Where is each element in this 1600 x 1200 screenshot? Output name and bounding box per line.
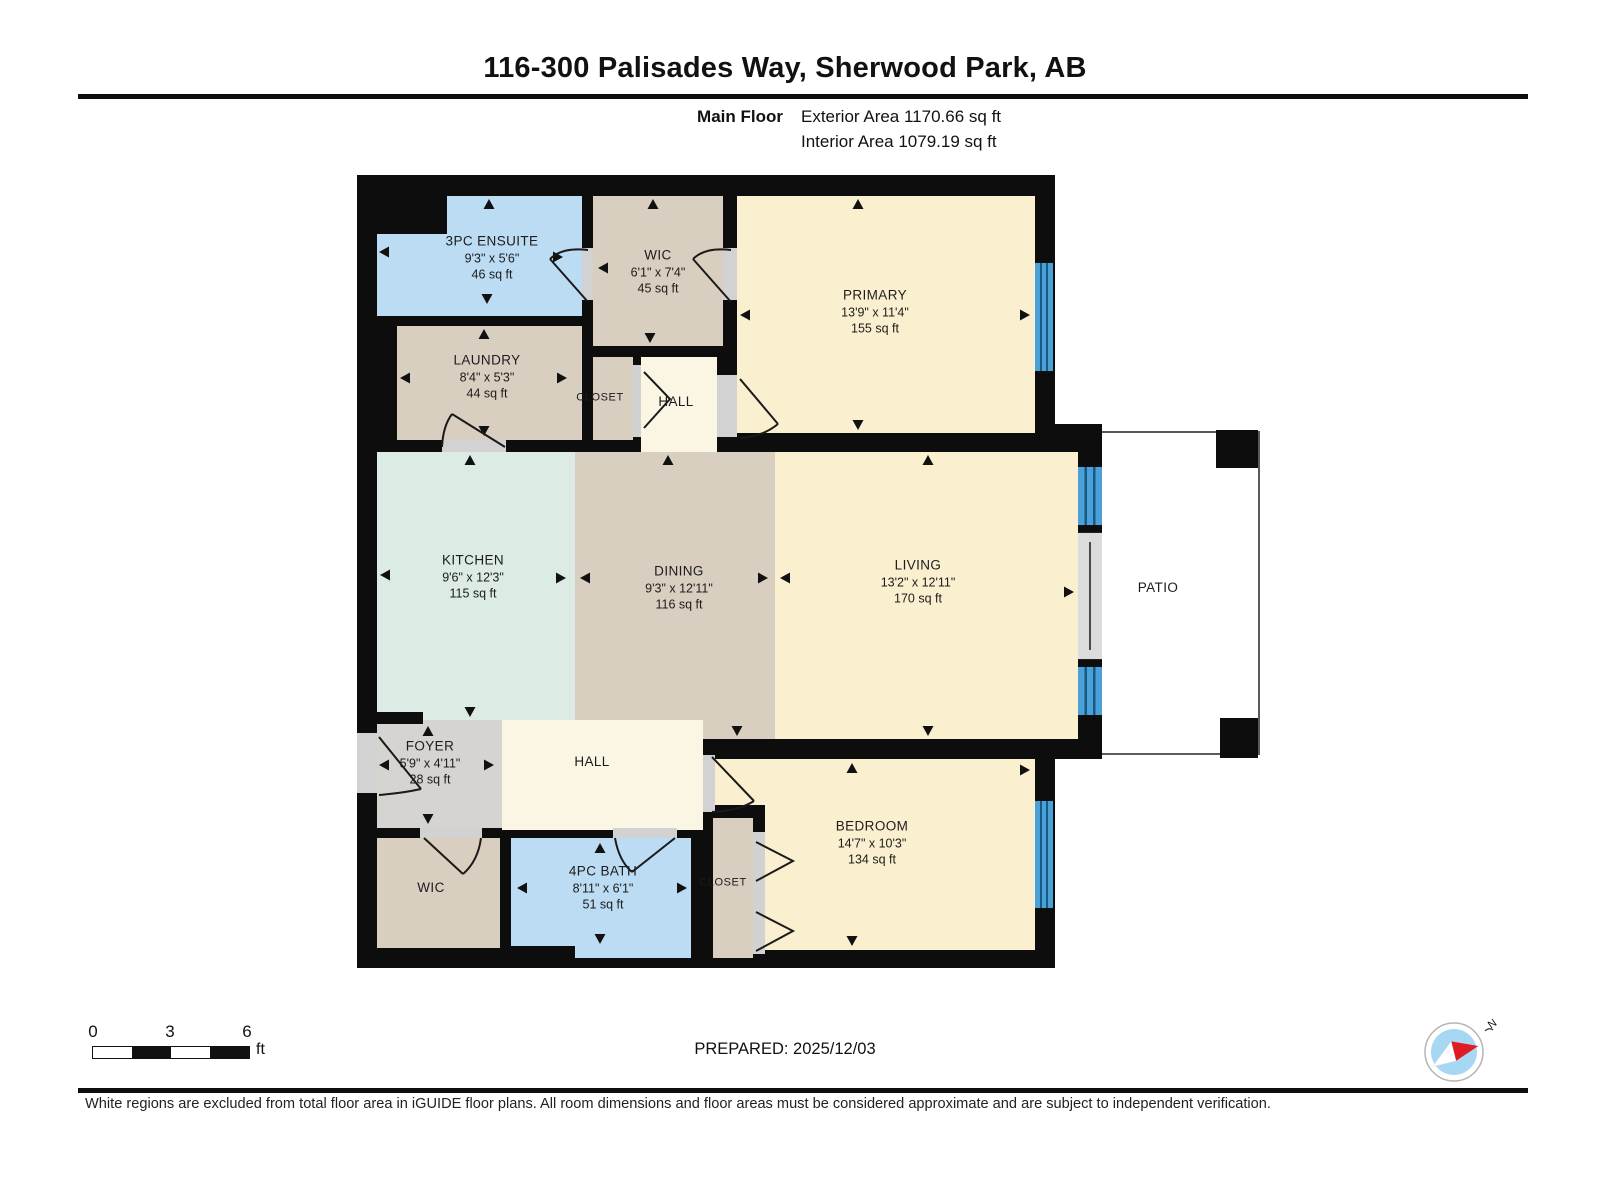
room-name: WIC xyxy=(417,880,444,895)
room-area: 51 sq ft xyxy=(569,897,637,914)
room-area: 45 sq ft xyxy=(631,281,686,298)
bath-door-opening xyxy=(613,828,677,838)
interior-area-label: Interior Area 1079.19 sq ft xyxy=(801,132,997,152)
room-dims: 6'1" x 7'4" xyxy=(631,264,686,281)
patio-post-bottom xyxy=(1220,718,1258,758)
label-living: LIVING 13'2" x 12'11" 170 sq ft xyxy=(881,557,956,608)
page-title: 116-300 Palisades Way, Sherwood Park, AB xyxy=(0,52,1570,85)
room-area: 46 sq ft xyxy=(446,267,539,284)
label-kitchen: KITCHEN 9'6" x 12'3" 115 sq ft xyxy=(442,552,504,603)
room-name: 4PC BATH xyxy=(569,863,637,881)
room-hall-bottom xyxy=(502,720,703,830)
label-primary: PRIMARY 13'9" x 11'4" 155 sq ft xyxy=(841,287,909,338)
room-name: LIVING xyxy=(881,557,956,575)
label-dining: DINING 9'3" x 12'11" 116 sq ft xyxy=(645,563,713,614)
room-name: FOYER xyxy=(400,738,461,756)
room-name: KITCHEN xyxy=(442,552,504,570)
room-name: 3PC ENSUITE xyxy=(446,233,539,251)
living-window-lower xyxy=(1078,666,1102,716)
room-dims: 9'3" x 12'11" xyxy=(645,580,713,597)
room-name: HALL xyxy=(574,754,609,769)
wic-top-door-opening xyxy=(723,248,737,300)
room-area: 170 sq ft xyxy=(881,591,956,608)
bedroom-window xyxy=(1035,800,1053,909)
label-wic-top: WIC 6'1" x 7'4" 45 sq ft xyxy=(631,247,686,298)
wall-stub-foyer xyxy=(377,712,423,724)
disclaimer-text: White regions are excluded from total fl… xyxy=(85,1096,1385,1112)
floor-plan-page: 116-300 Palisades Way, Sherwood Park, AB… xyxy=(0,0,1600,1200)
label-hall-top: HALL xyxy=(658,393,693,411)
room-dims: 13'9" x 11'4" xyxy=(841,304,909,321)
label-bath: 4PC BATH 8'11" x 6'1" 51 sq ft xyxy=(569,863,637,914)
label-laundry: LAUNDRY 8'4" x 5'3" 44 sq ft xyxy=(453,352,520,403)
room-name: BEDROOM xyxy=(836,818,909,836)
room-area: 28 sq ft xyxy=(400,772,461,789)
room-dims: 9'6" x 12'3" xyxy=(442,569,504,586)
exterior-area-label: Exterior Area 1170.66 sq ft xyxy=(801,107,1001,127)
room-name: CLOSET xyxy=(576,392,624,404)
scale-tick-0: 0 xyxy=(85,1022,101,1042)
room-area: 44 sq ft xyxy=(453,386,520,403)
room-dims: 14'7" x 10'3" xyxy=(836,835,909,852)
room-bedroom-entry xyxy=(715,759,1035,805)
room-dims: 13'2" x 12'11" xyxy=(881,574,956,591)
label-wic-bottom: WIC xyxy=(417,879,444,897)
label-closet-bottom: CLOSET xyxy=(699,876,747,891)
header-divider xyxy=(78,94,1528,99)
room-name: PATIO xyxy=(1138,580,1179,595)
living-window-upper xyxy=(1078,466,1102,526)
room-area: 134 sq ft xyxy=(836,852,909,869)
room-area: 155 sq ft xyxy=(841,321,909,338)
label-closet-top: CLOSET xyxy=(576,391,624,406)
room-area: 116 sq ft xyxy=(645,597,713,614)
label-ensuite: 3PC ENSUITE 9'3" x 5'6" 46 sq ft xyxy=(446,233,539,284)
patio-post-top xyxy=(1216,430,1258,468)
label-bedroom: BEDROOM 14'7" x 10'3" 134 sq ft xyxy=(836,818,909,869)
room-name: DINING xyxy=(645,563,713,581)
footer-divider xyxy=(78,1088,1528,1093)
room-ensuite-upper xyxy=(447,196,582,234)
label-foyer: FOYER 5'9" x 4'11" 28 sq ft xyxy=(400,738,461,789)
label-hall-bottom: HALL xyxy=(574,753,609,771)
wic-bottom-door-opening xyxy=(420,828,482,838)
primary-door-opening xyxy=(717,375,737,437)
label-patio: PATIO xyxy=(1138,579,1179,597)
room-dims: 5'9" x 4'11" xyxy=(400,755,461,772)
room-name: LAUNDRY xyxy=(453,352,520,370)
prepared-date-label: PREPARED: 2025/12/03 xyxy=(0,1040,1570,1059)
room-bath-left xyxy=(511,838,575,946)
entry-door-opening xyxy=(357,733,377,793)
room-dims: 8'11" x 6'1" xyxy=(569,880,637,897)
room-dims: 9'3" x 5'6" xyxy=(446,250,539,267)
patio-edge-right xyxy=(1258,431,1260,755)
patio-sliding-door xyxy=(1078,532,1102,660)
closet-top-opening xyxy=(633,365,641,437)
scale-tick-6: 6 xyxy=(239,1022,255,1042)
closet-bottom-opening xyxy=(753,832,765,954)
room-name: PRIMARY xyxy=(841,287,909,305)
ensuite-door-opening xyxy=(582,248,593,300)
laundry-door-opening xyxy=(442,440,506,452)
bedroom-door-opening xyxy=(703,755,715,812)
room-name: HALL xyxy=(658,394,693,409)
floor-name-label: Main Floor xyxy=(0,107,783,127)
scale-tick-3: 3 xyxy=(162,1022,178,1042)
room-area: 115 sq ft xyxy=(442,586,504,603)
compass-icon: N xyxy=(1419,1015,1503,1089)
primary-window xyxy=(1035,262,1053,372)
room-dims: 8'4" x 5'3" xyxy=(453,369,520,386)
room-name: WIC xyxy=(631,247,686,265)
room-name: CLOSET xyxy=(699,877,747,889)
